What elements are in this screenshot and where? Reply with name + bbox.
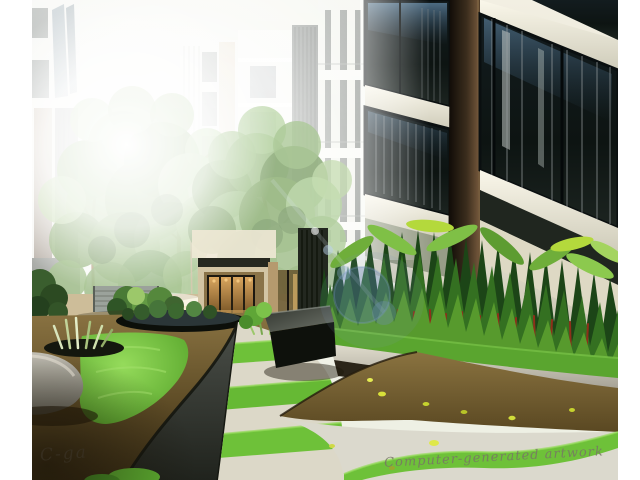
lobby-canopy bbox=[198, 258, 270, 267]
render-canvas bbox=[32, 0, 618, 480]
courtyard-render: C-ga Computer-generated artwork bbox=[32, 0, 618, 480]
artwork-frame: C-ga Computer-generated artwork bbox=[0, 0, 640, 480]
